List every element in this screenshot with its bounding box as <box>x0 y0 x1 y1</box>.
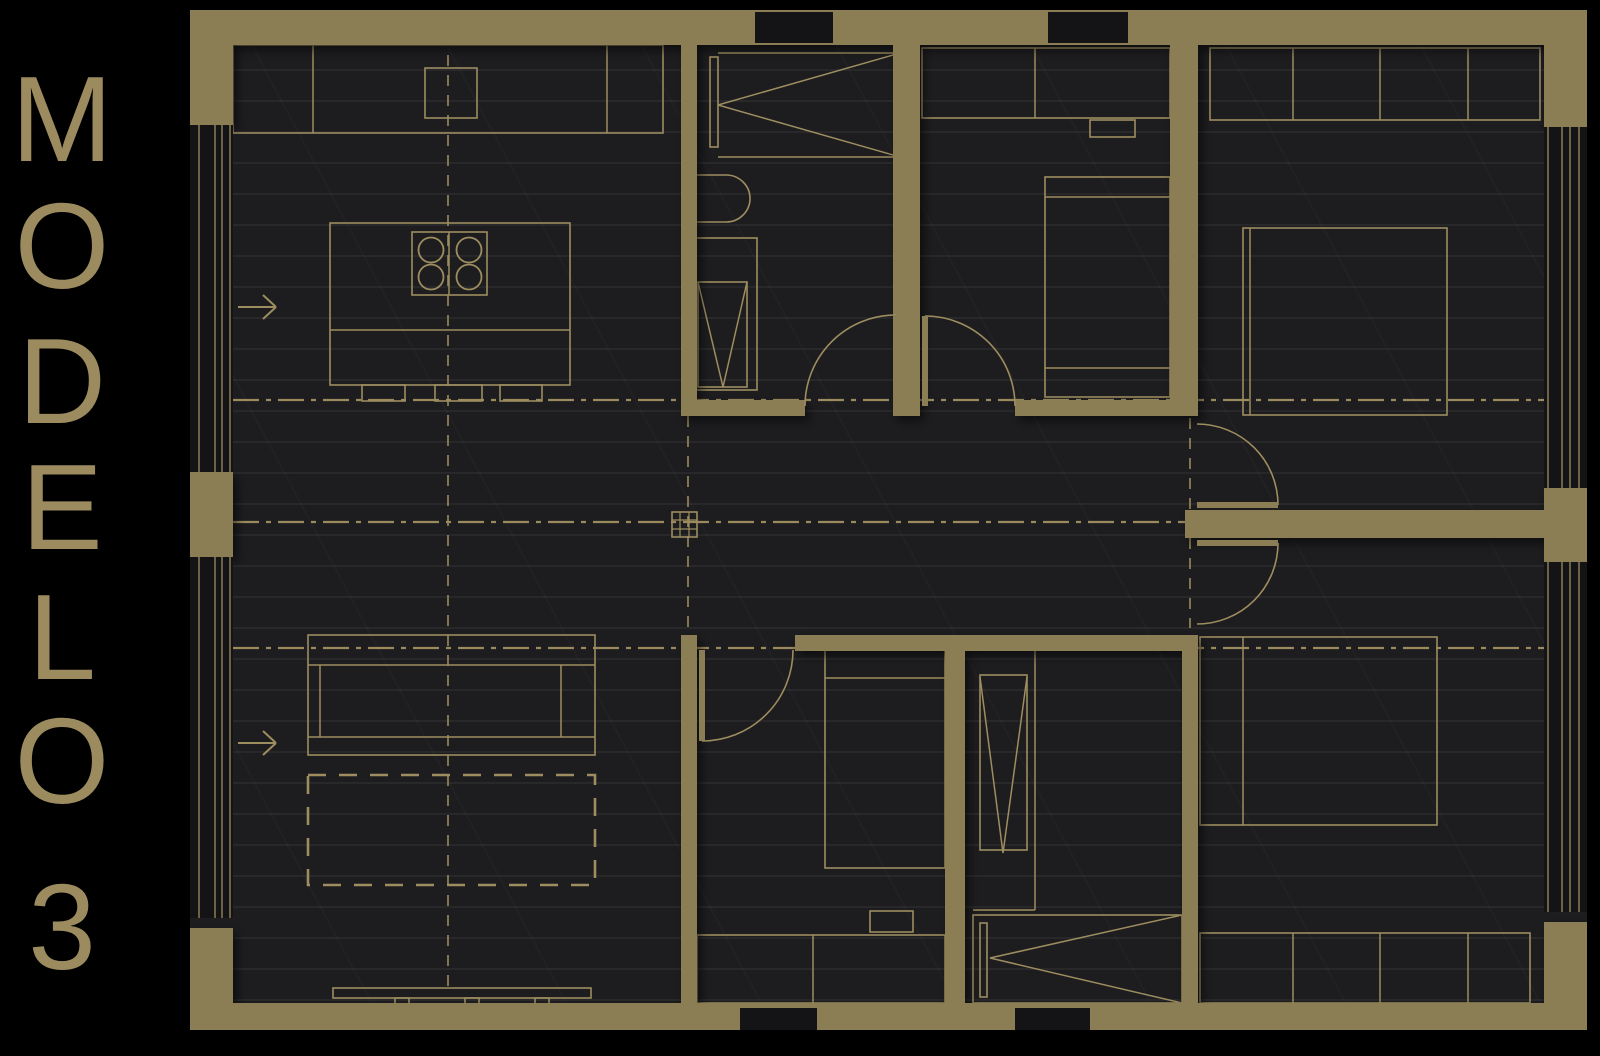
door-bed1-arc <box>1197 424 1278 505</box>
wardrobe-bed3 <box>697 935 945 1003</box>
bath1-closet-panel <box>710 57 718 147</box>
entry-arrow-icon <box>238 295 276 319</box>
furniture-line <box>723 282 747 387</box>
glazing-left-1 <box>190 125 233 472</box>
symbols-layer <box>238 295 697 755</box>
pier-left-bottom <box>190 928 233 1030</box>
bed4 <box>1200 637 1437 825</box>
wall-bath1-bottom <box>681 400 805 416</box>
bath2-unit <box>973 915 1182 1003</box>
door-bed4-arc <box>1197 543 1278 624</box>
title-letter-2: D <box>0 320 124 442</box>
window-top-2 <box>1048 12 1128 43</box>
kitchen-island <box>330 223 570 385</box>
wardrobe-bed1 <box>1210 48 1540 120</box>
tv-console <box>333 988 591 998</box>
nightstand-bed2 <box>1090 120 1135 137</box>
title-letter-1: O <box>0 185 124 307</box>
shower2-tray <box>980 675 1027 850</box>
entry-arrow-icon <box>238 731 276 755</box>
floor-plan <box>190 10 1587 1030</box>
plan-container <box>190 10 1587 1030</box>
wall-top <box>190 10 1587 45</box>
door-bed2-arc <box>925 316 1015 406</box>
glazing-right-2 <box>1544 562 1587 912</box>
glazing-right-1 <box>1544 127 1587 488</box>
furniture-line <box>698 282 723 387</box>
walls-layer <box>190 10 1587 1030</box>
pier-top-left <box>190 10 233 125</box>
kitchen-sink <box>425 68 477 118</box>
door-bed3-arc <box>702 650 793 741</box>
glazing-left-2 <box>190 557 233 918</box>
wall-bed2-bottom <box>1015 400 1180 416</box>
stool <box>435 385 482 401</box>
furniture-line <box>990 915 1182 958</box>
burner <box>457 238 482 263</box>
pier-top-right <box>1544 10 1587 127</box>
wall-bath1-left <box>681 45 697 416</box>
wall-bed3-bath2 <box>945 650 965 1003</box>
pier-right-mid <box>1544 488 1587 562</box>
pier-left-mid <box>190 472 233 557</box>
shower1-tray <box>698 282 747 387</box>
bed2 <box>1045 177 1170 397</box>
wall-hall-bottom <box>795 635 1198 651</box>
window-bottom-1 <box>740 1008 817 1030</box>
bed1 <box>1243 228 1447 415</box>
burner <box>419 238 444 263</box>
title-letter-5: O <box>0 700 124 822</box>
project-title: MODELO3 <box>0 0 130 1056</box>
bath1-fixture <box>697 175 750 222</box>
door-bath1-arc <box>805 315 896 406</box>
column-marker <box>672 512 697 537</box>
title-letter-3: E <box>0 446 124 568</box>
title-letter-0: M <box>0 58 124 180</box>
wall-bed1-left <box>1170 45 1198 416</box>
stool <box>500 385 542 401</box>
title-letter-6: 3 <box>0 866 124 988</box>
wall-bed4-left <box>1182 635 1198 1003</box>
wall-bottom <box>190 1003 1587 1030</box>
stool <box>362 385 405 401</box>
wall-right-bedrooms-divider <box>1185 510 1545 538</box>
burner <box>457 265 482 290</box>
window-top-1 <box>755 12 833 43</box>
furniture-line <box>980 677 1003 853</box>
wall-bed3-left <box>681 635 697 1003</box>
wardrobe-bed4 <box>1200 933 1530 1003</box>
wardrobe-bed2 <box>922 48 1170 118</box>
bed3 <box>825 650 945 868</box>
furniture-line <box>990 958 1182 1003</box>
page: MODELO3 <box>0 0 1600 1056</box>
furniture-line <box>1003 677 1027 853</box>
burner <box>419 265 444 290</box>
nightstand-bed3 <box>870 911 913 932</box>
window-bottom-2 <box>1015 1008 1090 1030</box>
furniture-line <box>718 53 900 105</box>
furniture-line <box>718 105 900 157</box>
title-letter-4: L <box>0 576 124 698</box>
bath2-unit-panel <box>980 923 987 997</box>
rug <box>308 775 595 885</box>
pier-right-bottom <box>1544 922 1587 1030</box>
